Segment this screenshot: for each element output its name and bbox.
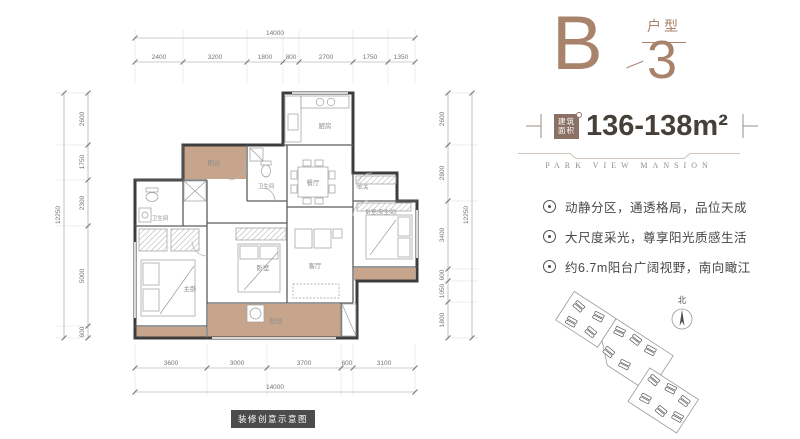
- dim-right-seg: 2800: [439, 165, 446, 180]
- badge-line-1: 建筑: [558, 117, 575, 126]
- room-label-foyer: 玄关: [357, 183, 369, 191]
- dim-right-seg: 600: [439, 269, 446, 280]
- area-value: 136-138m²: [586, 110, 728, 143]
- room-label-balcony-top: 阳台: [208, 158, 221, 167]
- dim-top-seg: 1350: [394, 54, 409, 61]
- room-label-kitchen: 厨房: [319, 121, 332, 130]
- dim-left-seg: 600: [79, 326, 86, 337]
- unit-type-header: B 户型 3: [548, 8, 798, 94]
- brand-name: PARK VIEW MANSION: [518, 161, 740, 170]
- dim-bottom-total: 14000: [266, 384, 284, 391]
- north-compass: 北: [672, 295, 692, 329]
- unit-letter: B: [552, 4, 603, 84]
- dimension-extension-lines: [56, 30, 478, 396]
- feature-item: 动静分区，通透格局，品位天成: [543, 197, 751, 216]
- dim-bottom-seg: 600: [342, 360, 353, 367]
- room-label-master-bedroom: 主卧: [184, 284, 198, 293]
- site-parcels: [548, 291, 711, 433]
- furniture: [139, 96, 412, 336]
- feature-item: 大尺度采光，尊享阳光质感生活: [543, 227, 751, 246]
- dim-top-seg: 3200: [208, 54, 223, 61]
- feature-text: 约6.7m阳台广阔视野，南向瞰江: [565, 257, 751, 276]
- room-label-bath-2: 卫生间: [258, 182, 275, 190]
- dimension-end-mark-left: [526, 111, 548, 141]
- dim-left-seg: 5000: [79, 268, 86, 283]
- dim-top-seg: 800: [286, 54, 297, 61]
- dim-top-seg: 2400: [152, 54, 167, 61]
- dim-right-seg: 1050: [439, 283, 446, 298]
- dim-right-seg: 2600: [439, 111, 446, 126]
- dim-top-total: 14000: [266, 30, 284, 37]
- compass-north-label: 北: [678, 295, 687, 305]
- site-plan: 北: [548, 288, 723, 438]
- dim-left-seg: 1750: [79, 154, 86, 169]
- dimension-end-mark-right: [736, 111, 758, 141]
- unit-number: 3: [647, 32, 677, 88]
- room-label-living: 客厅: [309, 261, 323, 270]
- room-label-bath-1: 卫生间: [152, 214, 169, 222]
- dim-bottom-seg: 3100: [377, 360, 392, 367]
- bullet-circle-dot-icon: [543, 200, 556, 213]
- dim-left-seg: 2600: [79, 111, 86, 126]
- dim-bottom-seg: 3600: [164, 360, 179, 367]
- bullet-dot: [548, 235, 551, 238]
- caption-badge: 装修创意示意图: [231, 410, 315, 428]
- bullet-circle-dot-icon: [543, 230, 556, 243]
- dim-right-total: 12250: [463, 206, 470, 224]
- area-row: 建筑 面积 136-138m²: [526, 110, 758, 142]
- dim-left-seg: 2300: [79, 195, 86, 210]
- dimension-lines: [62, 36, 475, 395]
- room-label-bedroom-safe: 卧室(安全间): [365, 208, 396, 216]
- floorplan-poster: 14000 2400 3200 1800 800 2700 1750 1350 …: [0, 0, 800, 439]
- badge-line-2: 面积: [558, 126, 575, 135]
- dim-left-total: 12250: [55, 206, 62, 224]
- feature-text: 动静分区，通透格局，品位天成: [565, 197, 747, 216]
- dim-bottom-seg: 3000: [230, 360, 245, 367]
- unit-slash-divider: [626, 61, 643, 69]
- dim-top-seg: 1800: [258, 54, 273, 61]
- feature-item: 约6.7m阳台广阔视野，南向瞰江: [543, 257, 751, 276]
- feature-text: 大尺度采光，尊享阳光质感生活: [565, 227, 747, 246]
- dim-top-seg: 1750: [363, 54, 378, 61]
- room-label-bedroom: 卧室: [257, 263, 271, 272]
- building-area-badge: 建筑 面积: [554, 114, 579, 139]
- dim-right-seg: 1800: [439, 312, 446, 327]
- bullet-dot: [548, 265, 551, 268]
- bullet-circle-dot-icon: [543, 260, 556, 273]
- floorplan-drawing: 14000 2400 3200 1800 800 2700 1750 1350 …: [0, 0, 530, 439]
- dim-top-seg: 2700: [319, 54, 334, 61]
- feature-list: 动静分区，通透格局，品位天成 大尺度采光，尊享阳光质感生活 约6.7m阳台广阔视…: [543, 197, 751, 287]
- dim-bottom-seg: 3700: [297, 360, 312, 367]
- room-label-dining: 餐厅: [307, 178, 321, 187]
- badge-registered-mark: [576, 112, 582, 118]
- room-label-balcony-bottom: 阳台: [270, 316, 283, 325]
- bullet-dot: [548, 205, 551, 208]
- dim-right-seg: 3400: [439, 227, 446, 242]
- compass-needle-icon: [680, 310, 685, 327]
